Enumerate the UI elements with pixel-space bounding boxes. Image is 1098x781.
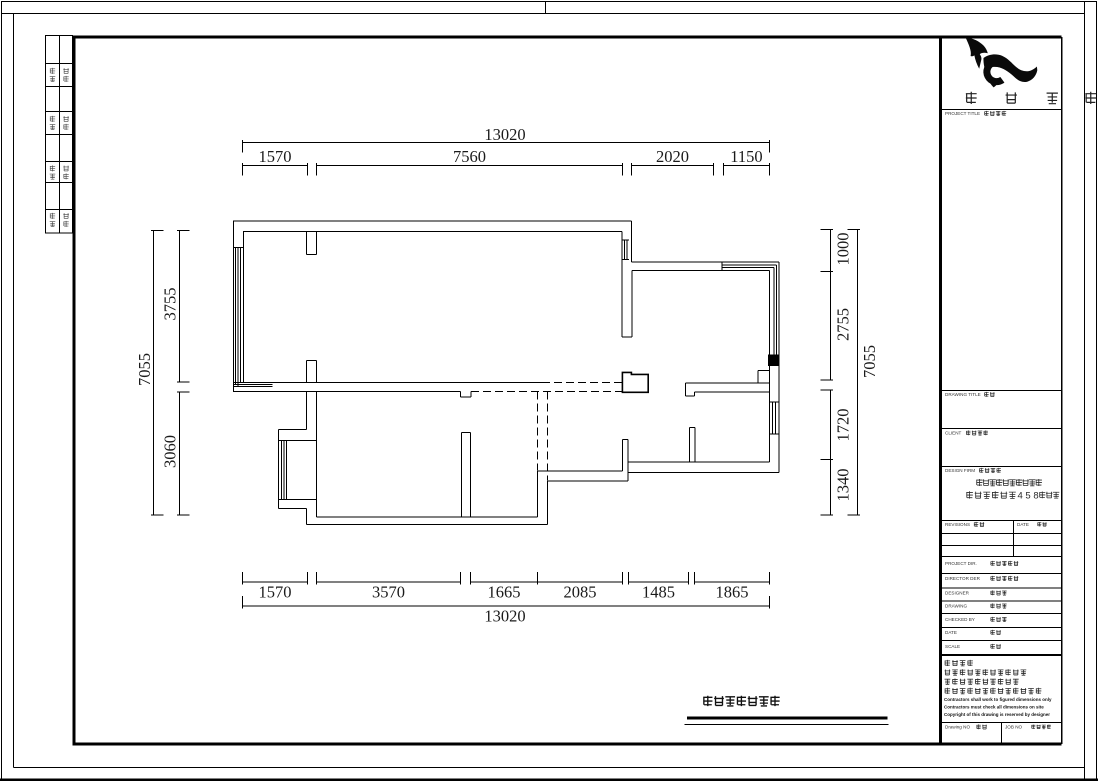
svg-text:CHECKED BY: CHECKED BY bbox=[945, 617, 975, 622]
svg-text:REVISIONS: REVISIONS bbox=[945, 522, 970, 527]
svg-text:7055: 7055 bbox=[135, 353, 154, 386]
svg-text:SCALE: SCALE bbox=[945, 644, 960, 649]
svg-text:Drawing NO: Drawing NO bbox=[945, 725, 970, 730]
svg-text:JOB NO: JOB NO bbox=[1005, 725, 1023, 730]
svg-text:1485: 1485 bbox=[642, 583, 675, 602]
svg-text:1665: 1665 bbox=[488, 583, 521, 602]
svg-text:Copyright of this drawing is r: Copyright of this drawing is reserved by… bbox=[944, 712, 1050, 717]
svg-text:13020: 13020 bbox=[484, 125, 525, 144]
svg-text:2020: 2020 bbox=[656, 147, 689, 166]
svg-text:DRAWING TITLE: DRAWING TITLE bbox=[945, 392, 981, 397]
svg-text:DESIGN FIRM: DESIGN FIRM bbox=[945, 468, 975, 473]
svg-text:Contractors shall work to figu: Contractors shall work to figured dimens… bbox=[944, 697, 1052, 702]
svg-text:7560: 7560 bbox=[453, 147, 486, 166]
svg-text:3570: 3570 bbox=[372, 583, 405, 602]
svg-text:DIRECTOR DER: DIRECTOR DER bbox=[945, 576, 981, 581]
svg-text:1000: 1000 bbox=[834, 233, 853, 266]
svg-text:4 5 8: 4 5 8 bbox=[1018, 491, 1039, 502]
svg-text:PROJECT DIR.: PROJECT DIR. bbox=[945, 561, 977, 566]
svg-text:1570: 1570 bbox=[259, 147, 292, 166]
svg-text:1340: 1340 bbox=[834, 469, 853, 502]
svg-text:1865: 1865 bbox=[716, 583, 749, 602]
svg-text:DRAWING: DRAWING bbox=[945, 604, 967, 609]
svg-text:7055: 7055 bbox=[860, 345, 879, 378]
svg-text:DATE: DATE bbox=[1017, 522, 1029, 527]
svg-text:2755: 2755 bbox=[834, 308, 853, 341]
svg-text:1570: 1570 bbox=[259, 583, 292, 602]
svg-text:3755: 3755 bbox=[161, 288, 180, 321]
svg-text:DATE: DATE bbox=[945, 630, 957, 635]
svg-text:3060: 3060 bbox=[161, 435, 180, 468]
svg-text:CLIENT: CLIENT bbox=[945, 431, 962, 436]
svg-text:1150: 1150 bbox=[730, 147, 762, 166]
svg-text:13020: 13020 bbox=[484, 607, 525, 626]
svg-text:2085: 2085 bbox=[564, 583, 597, 602]
svg-text:DESIGNER: DESIGNER bbox=[945, 591, 970, 596]
svg-text:1720: 1720 bbox=[834, 409, 853, 442]
svg-text:PROJECT TITLE: PROJECT TITLE bbox=[945, 111, 980, 116]
svg-text:Contractors must check all dim: Contractors must check all dimensions on… bbox=[944, 705, 1044, 710]
